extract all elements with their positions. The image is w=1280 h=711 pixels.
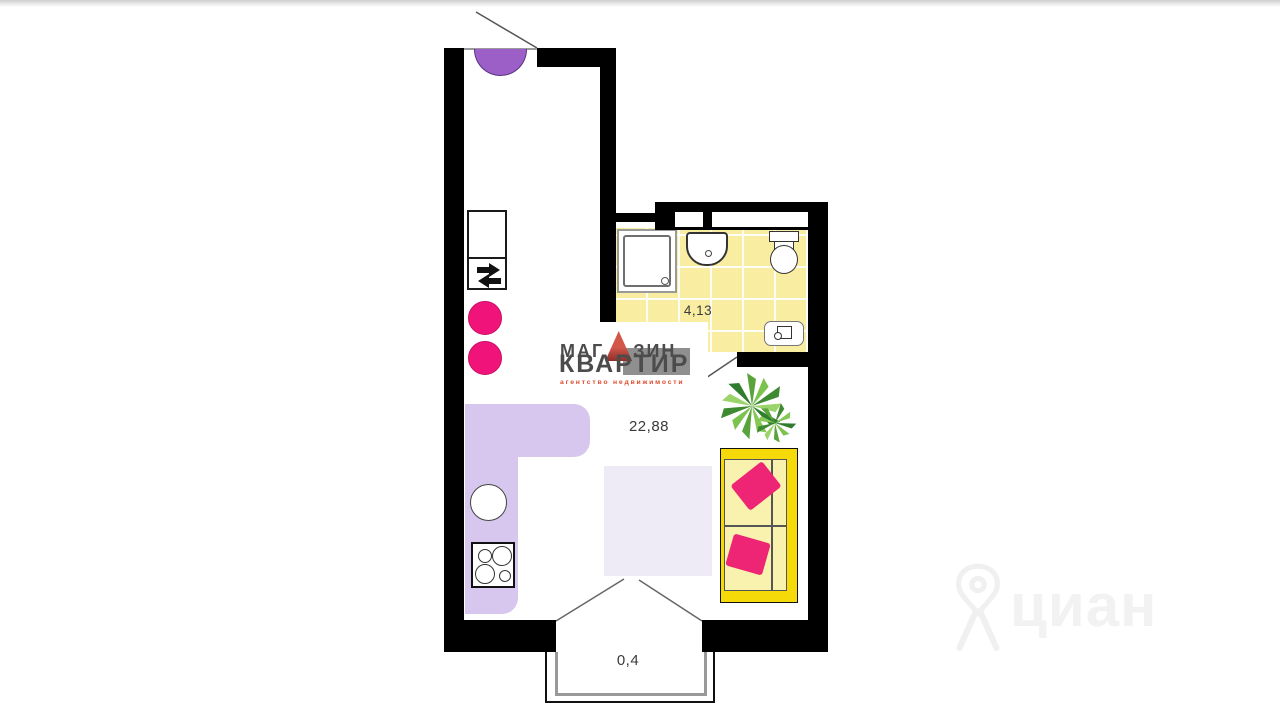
stove-icon (471, 542, 515, 588)
carpet (604, 466, 712, 576)
burner-icon (478, 549, 492, 563)
wardrobe-arrows-icon (469, 212, 509, 292)
burner-icon (492, 546, 512, 566)
sink-drain-icon (705, 250, 712, 257)
entrance-door-arc-icon (474, 49, 527, 76)
wall-niche (712, 212, 808, 227)
washing-machine-drum (774, 332, 782, 340)
wardrobe-icon (467, 210, 507, 290)
toilet-bowl-icon (770, 245, 798, 274)
balcony-door-swing-icon (540, 570, 710, 630)
wall (444, 620, 556, 652)
cian-pin-icon (946, 560, 1010, 652)
wall (808, 202, 828, 652)
wall (702, 620, 828, 652)
wall-niche (675, 212, 703, 227)
kitchen-sink-icon (470, 484, 507, 521)
balcony-railing-inner (555, 693, 707, 696)
balcony-railing (545, 701, 715, 703)
wall (600, 48, 616, 352)
shower-icon (617, 229, 677, 293)
wall (737, 352, 812, 367)
room-area-label-main: 22,88 (608, 418, 690, 435)
agency-logo-line2: КВАРТИР (559, 352, 707, 377)
sofa-seat-divider (724, 525, 787, 527)
agency-logo-tagline: агентство недвижимости (560, 379, 708, 386)
wall (444, 48, 464, 652)
balcony-railing-inner (704, 652, 707, 696)
shower-drain-icon (661, 277, 669, 285)
room-area-label-balcony: 0,4 (600, 652, 656, 669)
cian-watermark: циан (946, 556, 1206, 656)
stool-icon (468, 301, 502, 335)
floorplan-canvas: 22,88 4,13 0,4 МАГ ЗИН КВАРТИР агентство… (0, 0, 1280, 711)
cian-logo-text: циан (1010, 576, 1157, 636)
agency-watermark: МАГ ЗИН КВАРТИР агентство недвижимости (556, 322, 708, 400)
washing-machine-icon (764, 321, 804, 346)
burner-icon (475, 564, 495, 584)
burner-icon (499, 570, 511, 582)
balcony-railing (545, 652, 547, 703)
room-area-label-bathroom: 4,13 (675, 303, 721, 318)
stool-icon (468, 341, 502, 375)
balcony-railing (713, 652, 715, 703)
entrance-door-swing-icon (472, 8, 542, 53)
balcony-railing-inner (555, 652, 558, 696)
wall (616, 213, 656, 222)
top-gradient-strip (0, 0, 1280, 7)
